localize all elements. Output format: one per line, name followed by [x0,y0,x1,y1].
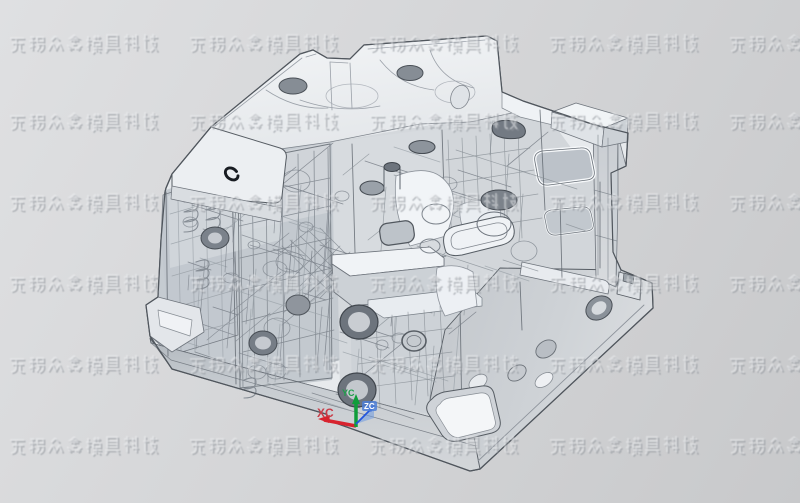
svg-text:ZC: ZC [364,402,375,411]
svg-text:XC: XC [317,406,334,420]
svg-text:YC: YC [342,388,355,398]
